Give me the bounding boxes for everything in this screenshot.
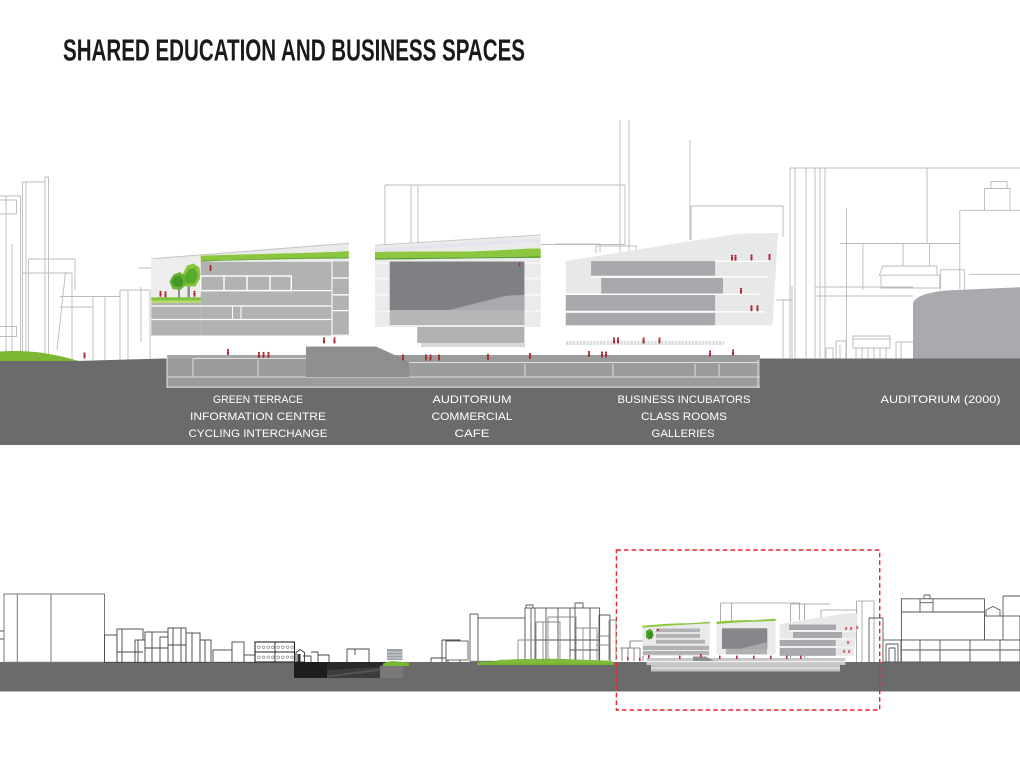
- svg-text:BUSINESS INCUBATORS: BUSINESS INCUBATORS: [618, 394, 751, 406]
- svg-text:GREEN TERRACE: GREEN TERRACE: [213, 394, 303, 406]
- svg-text:GALLERIES: GALLERIES: [652, 428, 715, 440]
- svg-text:AUDITORIUM: AUDITORIUM: [433, 394, 512, 406]
- svg-text:INFORMATION CENTRE: INFORMATION CENTRE: [190, 411, 326, 423]
- svg-text:AUDITORIUM (2000): AUDITORIUM (2000): [881, 394, 1001, 406]
- svg-text:CLASS ROOMS: CLASS ROOMS: [641, 411, 727, 423]
- svg-text:CYCLING INTERCHANGE: CYCLING INTERCHANGE: [189, 428, 328, 440]
- svg-text:SHARED EDUCATION AND BUSINESS: SHARED EDUCATION AND BUSINESS SPACES: [63, 33, 525, 67]
- svg-text:CAFE: CAFE: [455, 428, 490, 440]
- svg-text:COMMERCIAL: COMMERCIAL: [432, 411, 513, 423]
